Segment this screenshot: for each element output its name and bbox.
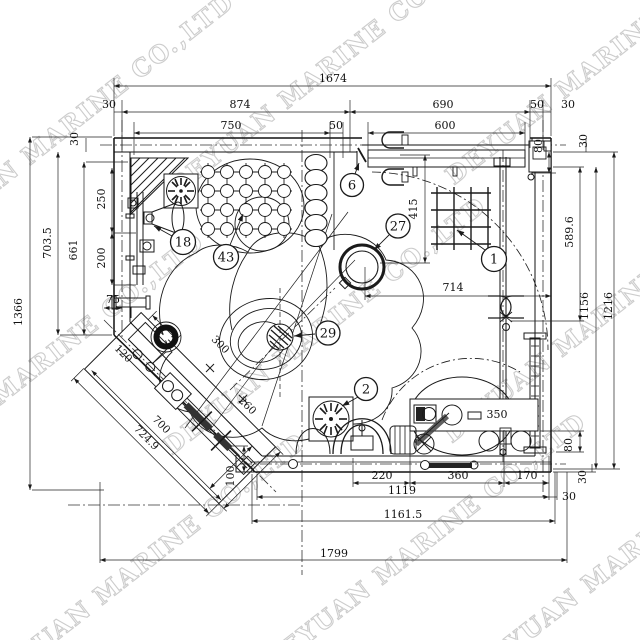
dim-220: 220 xyxy=(372,469,393,482)
drawing-sheet: DEYUAN MARINE CO.,LTD DEYUAN MARINE CO.,… xyxy=(0,0,640,640)
dim-80: 80 xyxy=(532,139,545,153)
dim-1799: 1799 xyxy=(320,547,348,560)
balloon-label: 43 xyxy=(218,251,235,266)
dim-360: 360 xyxy=(448,469,469,482)
dim-75: 75 xyxy=(106,293,120,306)
dim-703.5: 703.5 xyxy=(41,227,54,259)
balloon-label: 6 xyxy=(348,179,356,194)
dim-1161.5: 1161.5 xyxy=(384,508,423,521)
dim-50: 50 xyxy=(329,119,343,132)
dim-714: 714 xyxy=(443,281,464,294)
balloon-label: 27 xyxy=(390,220,407,235)
dim-1156: 1156 xyxy=(578,292,591,320)
door-handle-icon xyxy=(382,169,404,185)
heating-coil xyxy=(305,152,334,250)
dim-300: 300 xyxy=(209,334,232,357)
freeform-outline xyxy=(160,159,424,441)
dim-30: 30 xyxy=(562,490,576,503)
dim-874: 874 xyxy=(230,98,251,111)
dim-661: 661 xyxy=(67,240,80,261)
dim-30: 30 xyxy=(577,134,590,148)
watermark-text: DEYUAN MARINE CO.,LTD xyxy=(0,426,312,640)
dim-1119: 1119 xyxy=(388,484,416,497)
balloon-6: 6 xyxy=(341,163,364,197)
dim-350: 350 xyxy=(487,408,508,421)
dim-30: 30 xyxy=(561,98,575,111)
vent-grille-topleft xyxy=(164,174,198,208)
watermark-layer: DEYUAN MARINE CO.,LTD DEYUAN MARINE CO.,… xyxy=(0,0,640,640)
balloon-1: 1 xyxy=(457,230,507,272)
dim-750: 750 xyxy=(221,119,242,132)
dim-30: 30 xyxy=(102,98,116,111)
dim-30: 30 xyxy=(68,132,81,146)
dim-1674: 1674 xyxy=(319,72,347,85)
balloon-label: 2 xyxy=(362,383,370,398)
dim-589.6: 589.6 xyxy=(563,216,576,248)
door-handle-icon xyxy=(382,132,404,148)
dim-30: 30 xyxy=(576,470,589,484)
balloon-label: 18 xyxy=(175,236,192,251)
dim-1216: 1216 xyxy=(602,292,615,320)
dim-80: 80 xyxy=(562,438,575,452)
dim-600: 600 xyxy=(435,119,456,132)
dim-170: 170 xyxy=(517,469,538,482)
door-hinge-icon xyxy=(358,148,366,162)
balloon-label: 29 xyxy=(320,327,337,342)
dim-100: 100 xyxy=(224,466,237,487)
dim-50: 50 xyxy=(530,98,544,111)
dim-1366: 1366 xyxy=(12,298,25,326)
dim-690: 690 xyxy=(433,98,454,111)
engineering-drawing: DEYUAN MARINE CO.,LTD DEYUAN MARINE CO.,… xyxy=(0,0,640,640)
door-handle-icon xyxy=(501,296,524,318)
dim-250: 250 xyxy=(95,189,108,210)
dim-415: 415 xyxy=(407,199,420,220)
dim-200: 200 xyxy=(95,248,108,269)
watermark-text: DEYUAN MARINE CO.,LTD xyxy=(0,0,240,256)
bottle-rack xyxy=(200,163,292,238)
balloon-label: 1 xyxy=(490,253,498,268)
